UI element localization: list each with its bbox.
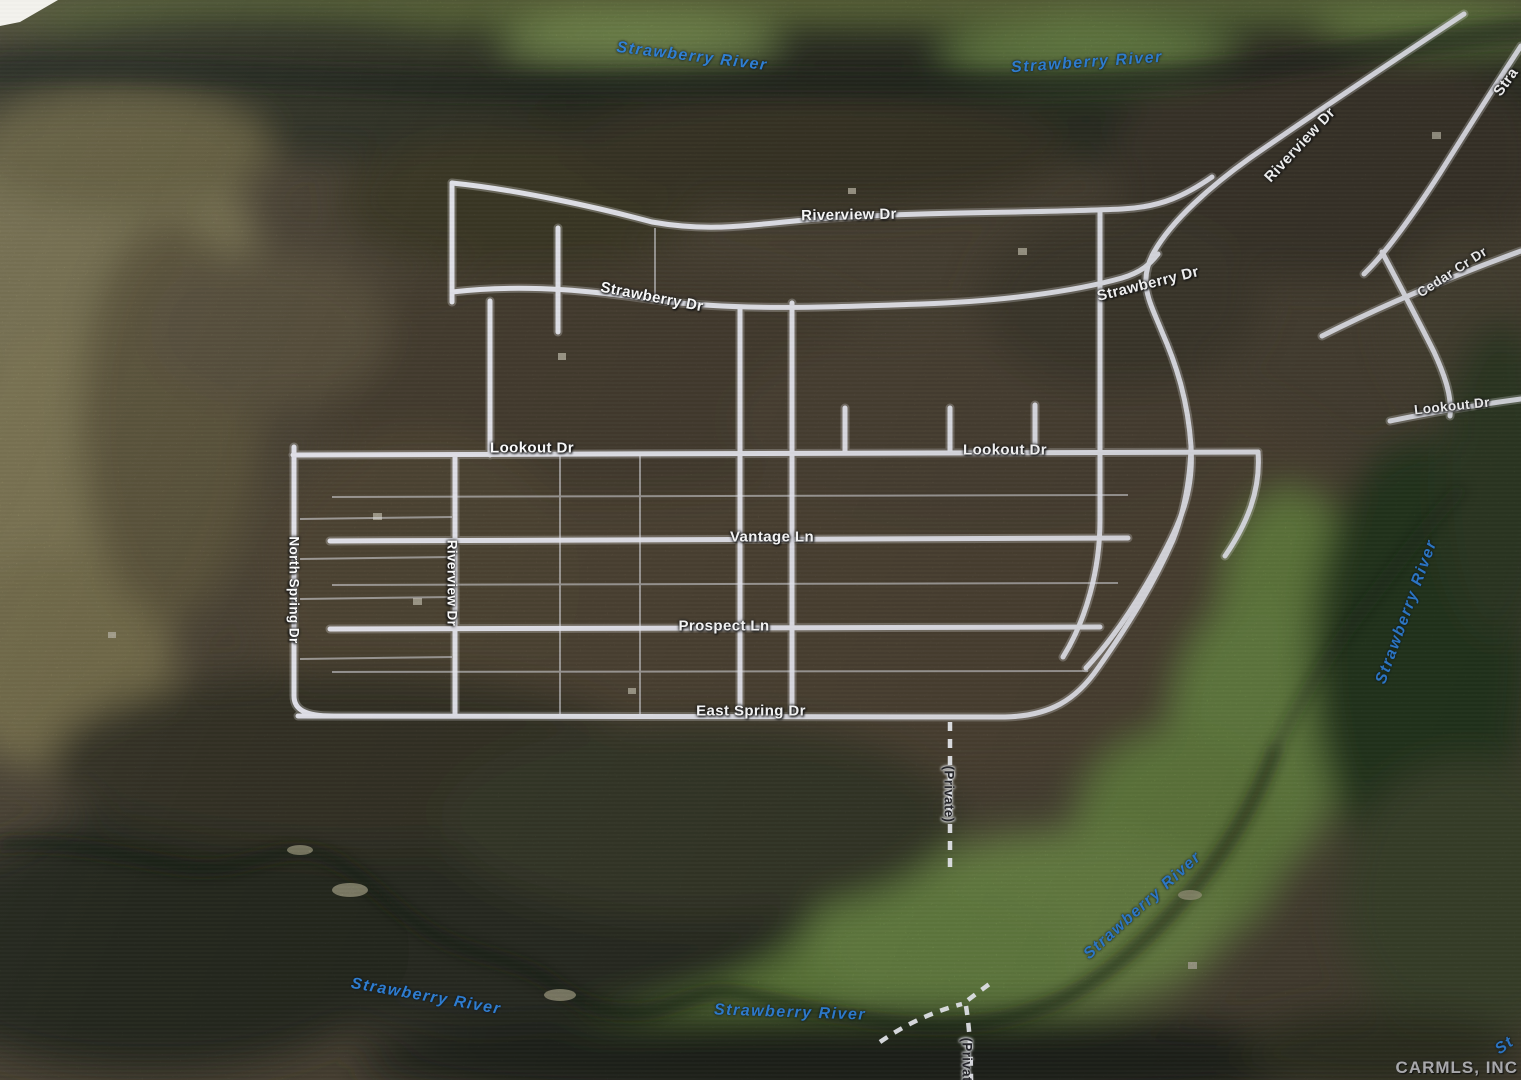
aerial-map-photo: Strawberry River Strawberry River Riverv… (0, 0, 1521, 1080)
map-canvas (0, 0, 1521, 1080)
watermark: CARMLS, INC (1396, 1058, 1518, 1078)
